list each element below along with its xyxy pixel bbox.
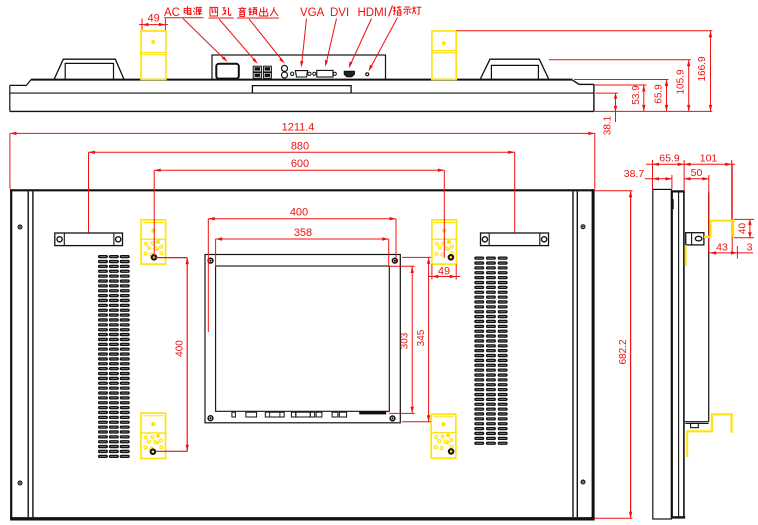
svg-text:105.9: 105.9 [676,69,687,94]
svg-text:345: 345 [416,329,427,346]
svg-text:101: 101 [700,152,718,164]
svg-text:880: 880 [291,140,309,152]
svg-text:65.9: 65.9 [654,84,665,104]
svg-text:43: 43 [716,242,728,254]
svg-text:3: 3 [747,242,753,254]
svg-text:49: 49 [148,13,160,25]
svg-text:358: 358 [294,227,312,239]
svg-text:VGA: VGA [300,7,325,19]
svg-text:166.9: 166.9 [697,56,708,81]
svg-text:400: 400 [174,340,185,357]
svg-text:38.7: 38.7 [624,168,645,180]
svg-text:50: 50 [691,167,703,179]
svg-text:DVI: DVI [330,7,349,19]
svg-text:HDMI: HDMI [358,7,387,19]
svg-text:53.9: 53.9 [631,85,642,105]
svg-text:303: 303 [400,332,411,349]
svg-text:65.9: 65.9 [659,152,680,164]
svg-text:38.1: 38.1 [603,115,614,135]
svg-text:600: 600 [291,158,309,170]
svg-text:682.2: 682.2 [618,339,629,364]
svg-text:400: 400 [290,207,308,219]
svg-text:1211.4: 1211.4 [282,121,315,133]
svg-text:40: 40 [738,223,749,235]
svg-text:49: 49 [438,265,450,277]
